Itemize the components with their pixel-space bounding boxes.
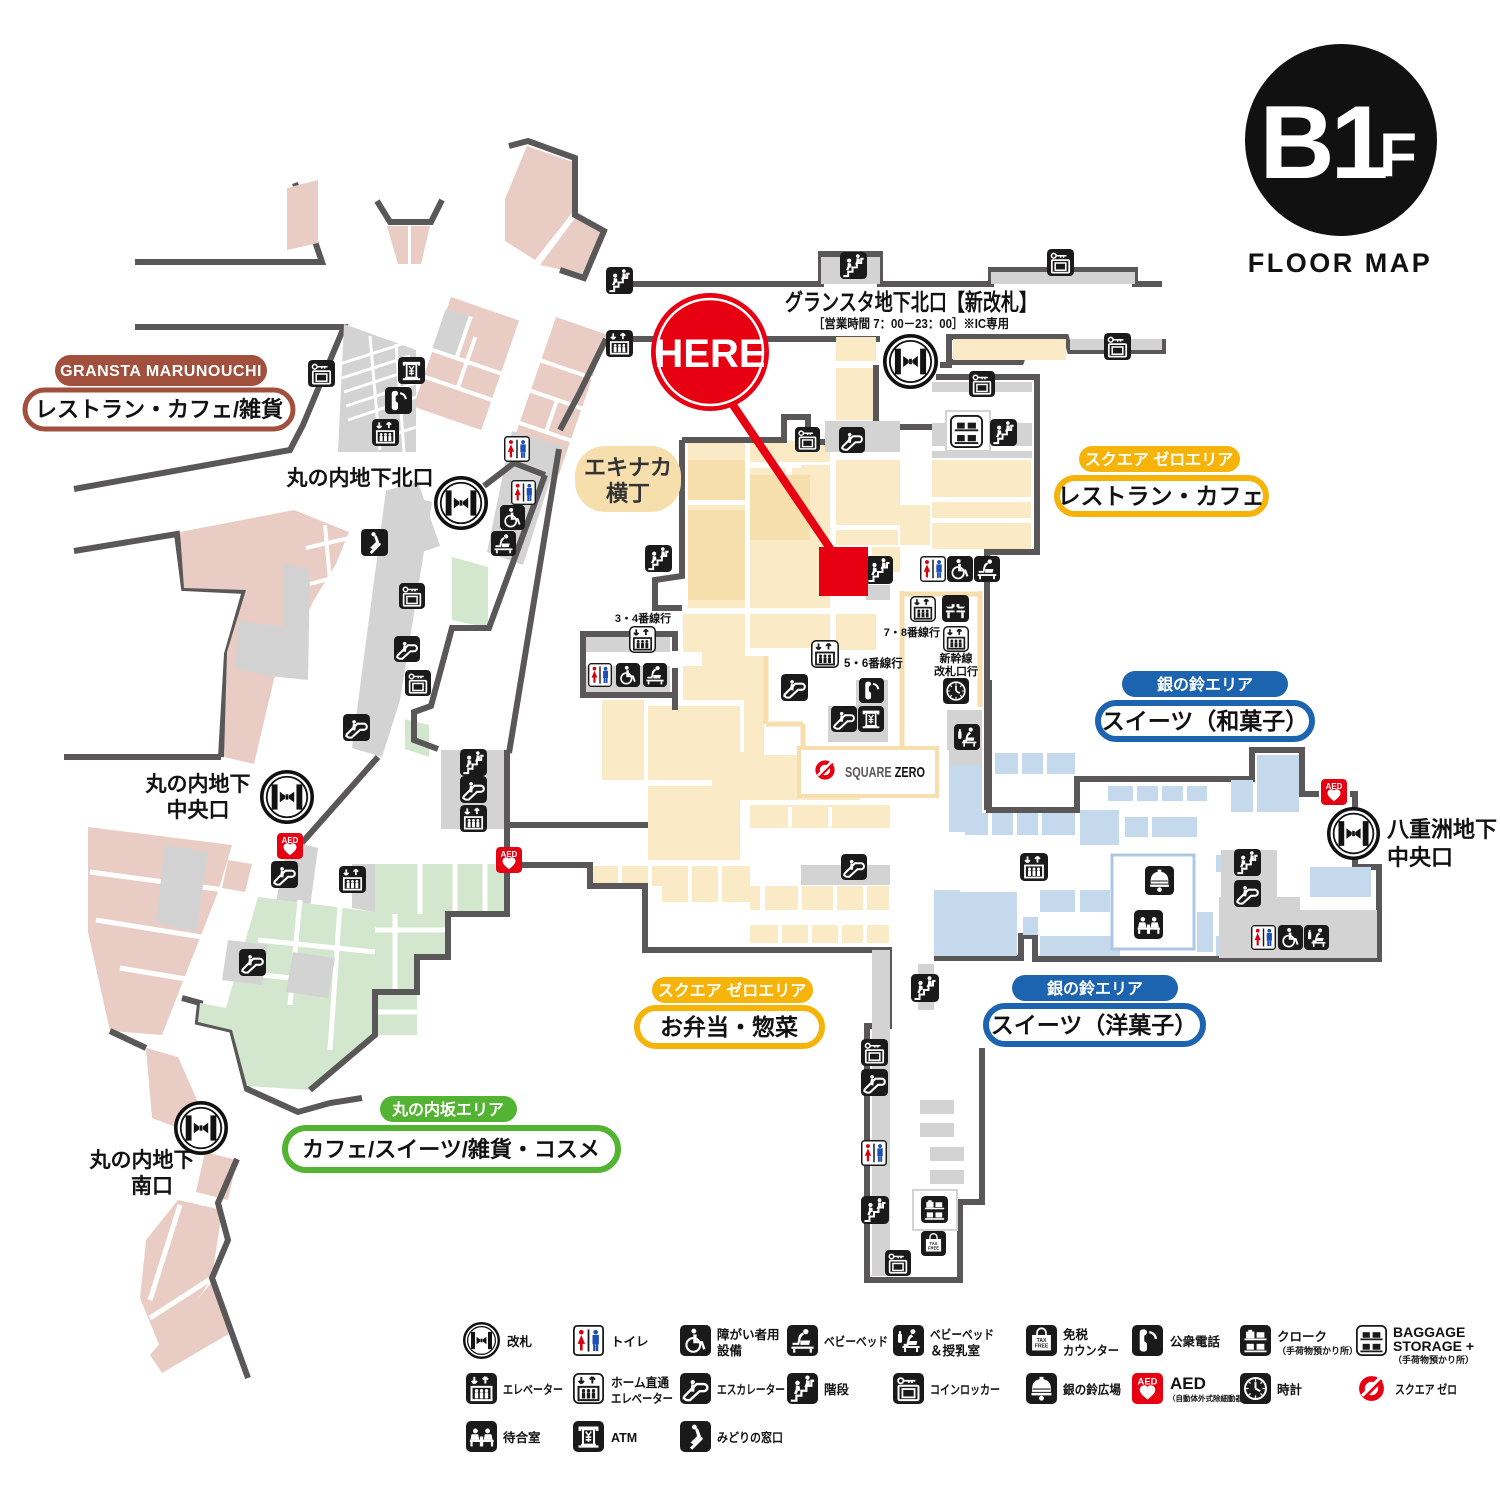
svg-text:カフェ/スイーツ/雑貨・コスメ: カフェ/スイーツ/雑貨・コスメ <box>302 1137 600 1162</box>
svg-text:B1: B1 <box>1260 85 1386 201</box>
svg-text:エレベーター: エレベーター <box>503 1382 563 1397</box>
svg-text:コインロッカー: コインロッカー <box>930 1383 1000 1397</box>
svg-text:グランスタ地下北口【新改札】: グランスタ地下北口【新改札】 <box>785 289 1037 315</box>
svg-text:南口: 南口 <box>131 1174 173 1198</box>
svg-text:5・6番線行: 5・6番線行 <box>844 656 903 670</box>
svg-text:丸の内地下北口: 丸の内地下北口 <box>286 466 434 490</box>
svg-text:銀の鈴エリア: 銀の鈴エリア <box>1157 675 1253 694</box>
svg-text:銀の鈴広場: 銀の鈴広場 <box>1062 1382 1121 1397</box>
svg-text:FLOOR MAP: FLOOR MAP <box>1248 248 1433 278</box>
svg-text:ベビーベッド: ベビーベッド <box>930 1327 994 1342</box>
svg-text:公衆電話: 公衆電話 <box>1170 1334 1221 1349</box>
svg-text:丸の内地下: 丸の内地下 <box>89 1148 195 1172</box>
svg-text:待合室: 待合室 <box>503 1430 541 1445</box>
svg-text:7・8番線行: 7・8番線行 <box>884 625 940 639</box>
svg-text:ホーム直通: ホーム直通 <box>611 1375 669 1390</box>
svg-text:エスカレーター: エスカレーター <box>717 1382 785 1397</box>
svg-text:改札口行: 改札口行 <box>934 664 978 678</box>
svg-text:八重洲地下: 八重洲地下 <box>1387 817 1497 842</box>
svg-text:スクエア ゼロ: スクエア ゼロ <box>1395 1382 1457 1397</box>
svg-text:ベビーベッド: ベビーベッド <box>824 1334 888 1349</box>
svg-text:［営業時間 7：00－23：00］※IC専用: ［営業時間 7：00－23：00］※IC専用 <box>813 316 1009 331</box>
svg-text:AED: AED <box>1170 1374 1206 1393</box>
svg-text:3・4番線行: 3・4番線行 <box>615 611 671 625</box>
svg-text:中央口: 中央口 <box>1387 845 1453 870</box>
svg-text:クローク: クローク <box>1277 1330 1327 1344</box>
svg-text:中央口: 中央口 <box>167 799 230 822</box>
svg-text:丸の内地下: 丸の内地下 <box>145 772 251 796</box>
svg-text:カウンター: カウンター <box>1063 1343 1119 1358</box>
svg-text:改札: 改札 <box>507 1334 533 1349</box>
svg-text:障がい者用: 障がい者用 <box>717 1327 780 1342</box>
svg-text:F: F <box>1379 121 1417 190</box>
svg-text:お弁当・惣菜: お弁当・惣菜 <box>660 1014 798 1040</box>
svg-text:レストラン・カフェ/雑貨: レストラン・カフェ/雑貨 <box>35 397 283 422</box>
svg-text:スイーツ（和菓子）: スイーツ（和菓子） <box>1102 708 1309 734</box>
svg-text:エキナカ: エキナカ <box>584 455 672 480</box>
svg-text:GRANSTA MARUNOUCHI: GRANSTA MARUNOUCHI <box>60 363 262 380</box>
svg-text:＆授乳室: ＆授乳室 <box>930 1343 981 1358</box>
svg-text:免税: 免税 <box>1063 1327 1089 1342</box>
svg-text:ATM: ATM <box>611 1431 637 1445</box>
svg-text:スクエア ゼロエリア: スクエア ゼロエリア <box>1085 450 1233 469</box>
svg-text:レストラン・カフェ: レストラン・カフェ <box>1058 483 1265 509</box>
svg-text:みどりの窓口: みどりの窓口 <box>717 1430 783 1445</box>
svg-text:銀の鈴エリア: 銀の鈴エリア <box>1047 979 1143 998</box>
svg-text:スクエア ゼロエリア: スクエア ゼロエリア <box>658 981 806 1000</box>
svg-text:（自動体外式除細動器）: （自動体外式除細動器） <box>1168 1393 1251 1403</box>
svg-text:エレベーター: エレベーター <box>611 1391 673 1406</box>
svg-text:新幹線: 新幹線 <box>940 651 973 665</box>
svg-text:スイーツ（洋菓子）: スイーツ（洋菓子） <box>991 1012 1198 1038</box>
svg-text:（手荷物預かり所）: （手荷物預かり所） <box>1277 1345 1358 1356</box>
svg-text:HERE: HERE <box>654 332 765 376</box>
svg-text:（手荷物預かり所）: （手荷物預かり所） <box>1393 1354 1474 1365</box>
svg-text:横丁: 横丁 <box>606 481 650 506</box>
svg-text:設備: 設備 <box>717 1343 743 1358</box>
svg-text:階段: 階段 <box>824 1382 850 1397</box>
svg-text:トイレ: トイレ <box>611 1335 649 1349</box>
svg-text:SQUARE ZERO: SQUARE ZERO <box>845 764 925 781</box>
svg-text:STORAGE +: STORAGE + <box>1393 1338 1474 1354</box>
svg-text:時計: 時計 <box>1277 1382 1303 1397</box>
svg-text:丸の内坂エリア: 丸の内坂エリア <box>391 1100 504 1119</box>
